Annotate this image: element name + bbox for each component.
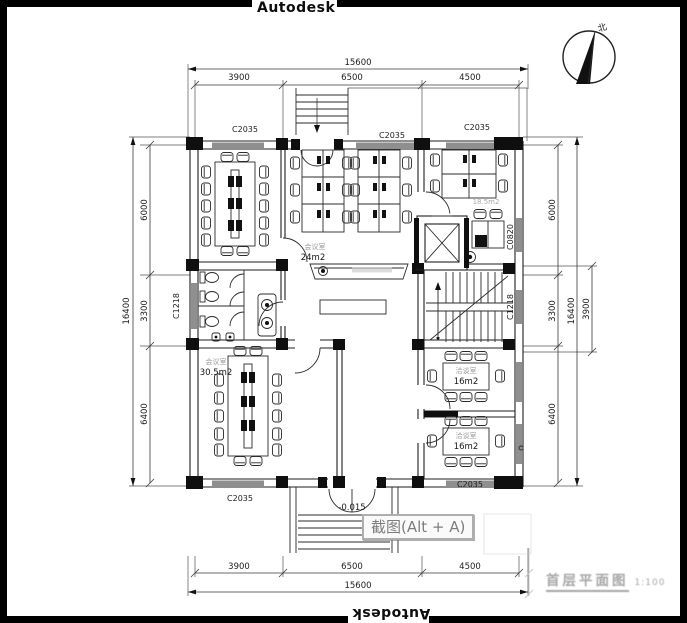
elevator xyxy=(414,214,469,271)
north-arrow: 北 xyxy=(563,21,615,84)
room-name-talk-lower: 洽谈室 xyxy=(456,431,477,440)
window-label-top-left: C2035 xyxy=(232,125,258,134)
dimensions-right: 6000 3300 6400 16400 3900 xyxy=(523,137,597,487)
open-office-workstations xyxy=(291,150,412,232)
stairs xyxy=(426,272,513,342)
window-label-top-center: C2035 xyxy=(379,131,405,140)
window-label-right-c0820: C0820 xyxy=(506,224,515,250)
dim-right-1: 6000 xyxy=(548,199,558,221)
dim-right-3: 6400 xyxy=(548,403,558,425)
room-meeting-bottom: 会议室 30.5m2 xyxy=(200,347,282,466)
toilets xyxy=(198,270,276,341)
window-label-bottom-right: C2035 xyxy=(457,480,483,489)
dim-bottom-1: 3900 xyxy=(228,562,250,572)
drawing-title-watermark: 首层平面图1:100 xyxy=(546,569,665,589)
room-talk-lower: 洽谈室 16m2 xyxy=(428,417,524,467)
room-name-talk-upper: 洽谈室 xyxy=(456,366,477,375)
room-area-office-right: 18.5m2 xyxy=(473,198,500,206)
dimensions-bottom: 3900 6500 4500 15600 xyxy=(188,548,528,596)
dim-right-total: 16400 xyxy=(567,297,577,324)
dim-left-total: 16400 xyxy=(122,297,132,324)
room-name-meeting-top: 会议室 xyxy=(305,242,326,251)
room-area-talk-upper: 16m2 xyxy=(454,377,479,387)
dim-left-1: 6000 xyxy=(140,199,150,221)
drawing-scale-text: 1:100 xyxy=(635,578,666,588)
dim-top-3: 4500 xyxy=(459,73,481,83)
faint-remnants xyxy=(484,514,533,598)
floor-plan-drawing: 北 15600 3900 6500 4500 3900 6500 4500 xyxy=(0,0,687,623)
screenshot-root: Autodesk Autodesk 北 15600 3900 6500 xyxy=(0,0,687,623)
room-name-meeting-bottom: 会议室 xyxy=(206,357,227,366)
dim-left-2: 3300 xyxy=(140,300,150,322)
entrance-elevation-label: -0.015 xyxy=(338,503,365,513)
dim-right-stair: 3900 xyxy=(582,298,592,320)
dim-top-total: 15600 xyxy=(344,58,371,68)
dim-right-2: 3300 xyxy=(548,300,558,322)
room-area-meeting-top: 24m2 xyxy=(301,253,326,263)
dim-top-2: 6500 xyxy=(341,73,363,83)
dim-left-3: 6400 xyxy=(140,403,150,425)
window-label-bottom-left: C2035 xyxy=(227,494,253,503)
screenshot-button[interactable]: 截图(Alt + A) xyxy=(362,514,474,540)
window-label-left-c1218: C1218 xyxy=(172,293,181,319)
north-label: 北 xyxy=(596,21,608,34)
dimensions-left: 16400 6000 3300 6400 xyxy=(122,137,198,487)
drawing-title-text: 首层平面图 xyxy=(546,573,629,592)
dim-top-1: 3900 xyxy=(228,73,250,83)
entrance-top xyxy=(296,88,527,166)
room-meeting-top: 会议室 24m2 xyxy=(202,153,326,264)
dim-bottom-3: 4500 xyxy=(459,562,481,572)
dim-bottom-2: 6500 xyxy=(341,562,363,572)
room-talk-upper: 洽谈室 16m2 xyxy=(428,352,505,402)
room-area-talk-lower: 16m2 xyxy=(454,442,479,452)
room-area-meeting-bottom: 30.5m2 xyxy=(200,368,233,378)
dim-bottom-total: 15600 xyxy=(344,581,371,591)
window-label-right-c1218: C1218 xyxy=(506,294,515,320)
reception-counter xyxy=(310,264,408,314)
window-label-top-right: C2035 xyxy=(464,123,490,132)
